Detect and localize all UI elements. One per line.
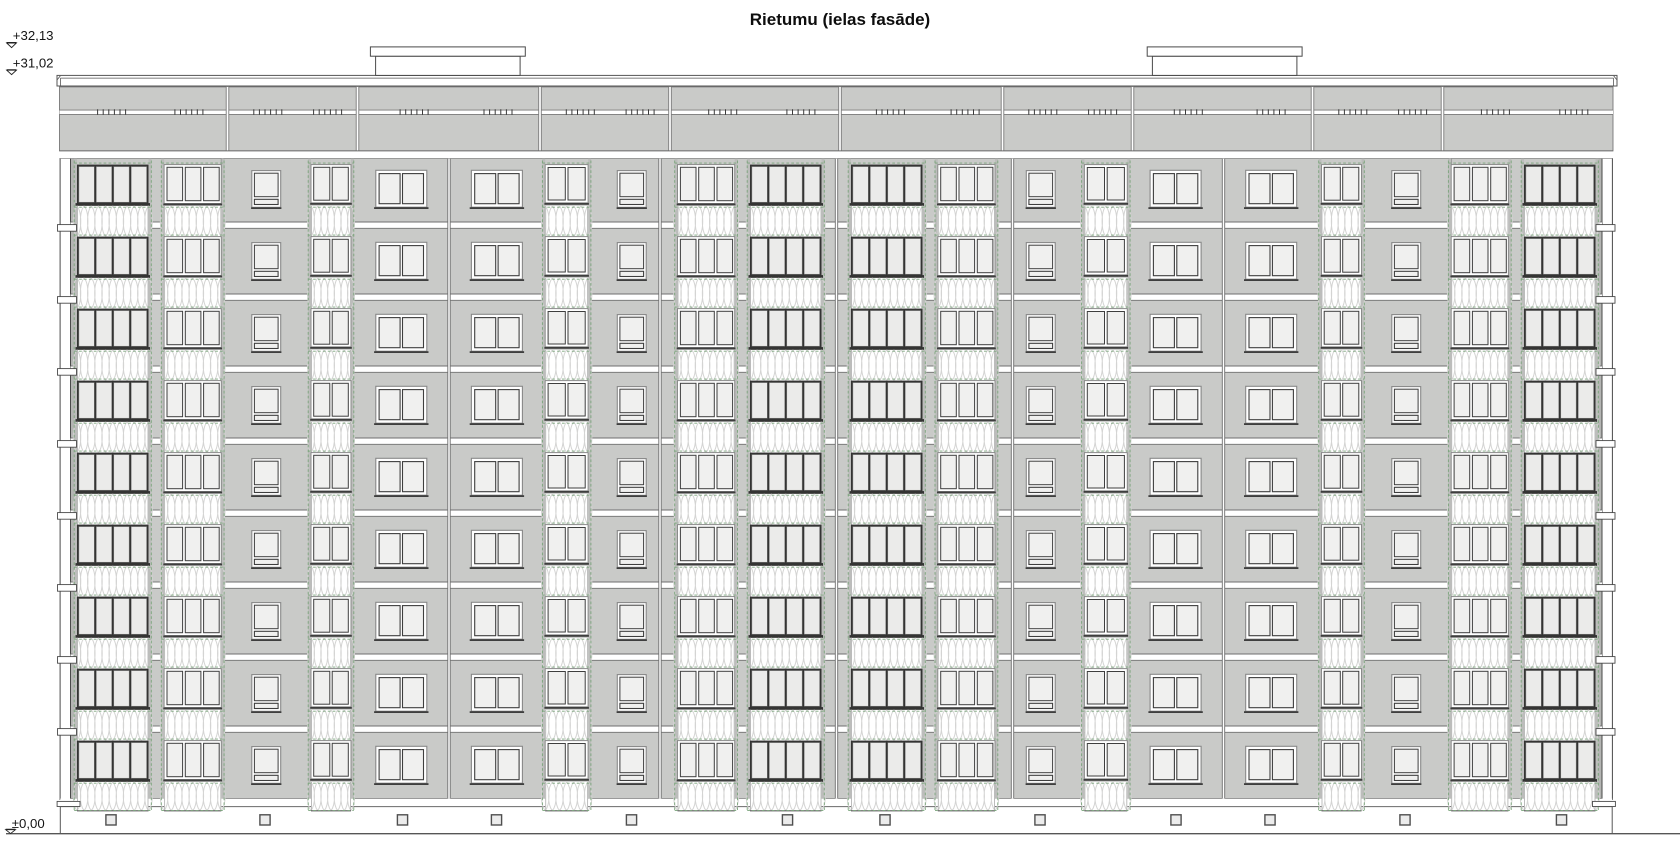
svg-text:±0,00: ±0,00	[12, 816, 45, 831]
svg-text:+31,02: +31,02	[13, 56, 54, 71]
svg-text:+32,13: +32,13	[13, 28, 54, 43]
svg-text:Rietumu (ielas fasāde): Rietumu (ielas fasāde)	[750, 10, 930, 29]
